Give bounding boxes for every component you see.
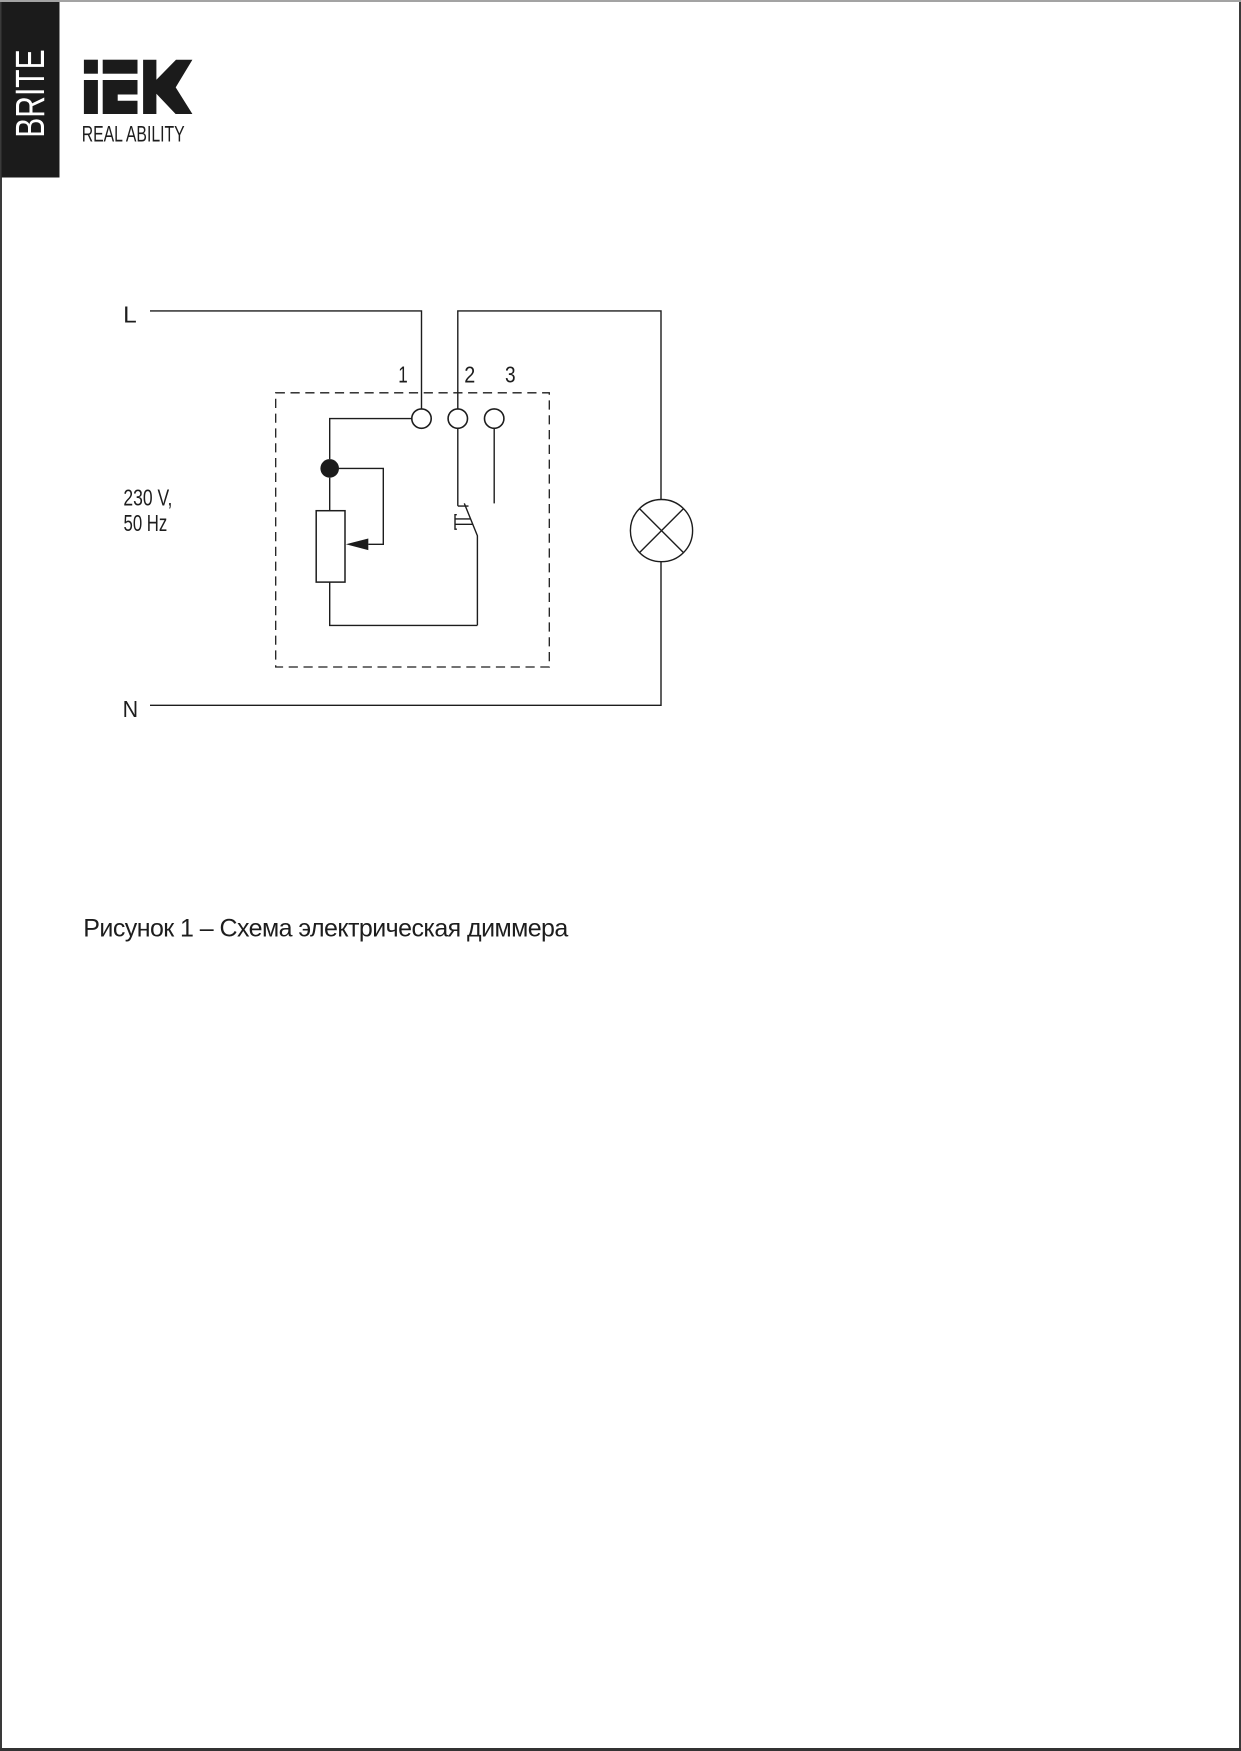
- svg-text:1: 1: [398, 362, 408, 388]
- svg-text:BRITE: BRITE: [7, 49, 53, 137]
- svg-text:230 V,: 230 V,: [123, 485, 172, 511]
- svg-text:3: 3: [505, 362, 516, 388]
- svg-text:N: N: [123, 696, 139, 722]
- svg-text:Рисунок 1 – Схема электрическа: Рисунок 1 – Схема электрическая диммера: [83, 915, 568, 943]
- svg-text:L: L: [123, 302, 137, 328]
- svg-text:REAL ABILITY: REAL ABILITY: [82, 122, 185, 147]
- svg-text:2: 2: [464, 362, 475, 388]
- svg-text:50 Hz: 50 Hz: [124, 510, 168, 536]
